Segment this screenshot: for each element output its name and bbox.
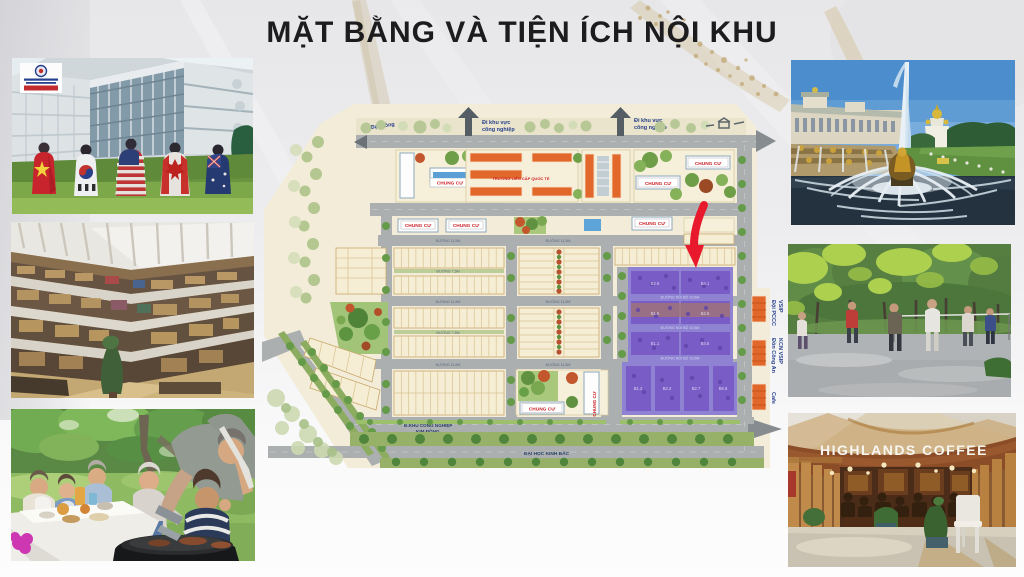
svg-text:Đội PCCC: Đội PCCC <box>770 300 776 326</box>
svg-text:ĐƯỜNG NỘI BỘ 10,5M: ĐƯỜNG NỘI BỘ 10,5M <box>661 325 700 330</box>
svg-text:CHUNG CƯ: CHUNG CƯ <box>437 181 463 187</box>
svg-text:ĐƯỜNG 11,5M: ĐƯỜNG 11,5M <box>436 299 461 304</box>
svg-text:CHUNG CƯ: CHUNG CƯ <box>529 407 555 413</box>
svg-text:B2.9: B2.9 <box>651 281 660 286</box>
svg-text:ĐƯỜNG NỘI BỘ 10,5M: ĐƯỜNG NỘI BỘ 10,5M <box>661 295 700 300</box>
svg-text:CHUNG CƯ: CHUNG CƯ <box>453 223 479 229</box>
svg-text:B1.2: B1.2 <box>634 386 643 391</box>
svg-text:ĐƯỜNG 11,5M: ĐƯỜNG 11,5M <box>546 299 571 304</box>
svg-text:B2.6: B2.6 <box>701 311 710 316</box>
svg-text:Đi khu vực: Đi khu vực <box>482 120 510 126</box>
svg-text:B6.8: B6.8 <box>719 386 728 391</box>
svg-text:HIGHLANDS COFFEE: HIGHLANDS COFFEE <box>820 442 988 458</box>
svg-text:CHUNG CƯ: CHUNG CƯ <box>592 391 597 416</box>
svg-text:ĐƯỜNG 11,5M: ĐƯỜNG 11,5M <box>546 362 571 367</box>
svg-text:Đồn Công An: Đồn Công An <box>770 338 776 374</box>
svg-text:ĐƯỜNG 7,5M: ĐƯỜNG 7,5M <box>436 330 459 335</box>
svg-text:B4.5: B4.5 <box>701 341 710 346</box>
svg-text:công nghiệp: công nghiệp <box>482 127 515 133</box>
svg-text:TRƯỜNG LIÊN CẤP QUỐC TẾ: TRƯỜNG LIÊN CẤP QUỐC TẾ <box>492 176 549 181</box>
svg-text:CHUNG CƯ: CHUNG CƯ <box>639 221 665 227</box>
svg-text:ĐƯỜNG 11,5M: ĐƯỜNG 11,5M <box>436 238 461 243</box>
svg-text:CHUNG CƯ: CHUNG CƯ <box>695 161 721 167</box>
svg-text:ĐƯỜNG 7,5M: ĐƯỜNG 7,5M <box>436 269 459 274</box>
svg-text:B4.1: B4.1 <box>701 281 710 286</box>
svg-text:Cafe: Cafe <box>770 392 776 404</box>
svg-text:B2.7: B2.7 <box>692 386 701 391</box>
svg-text:KCN VSIP: KCN VSIP <box>777 338 783 364</box>
svg-text:ĐƯỜNG 11,5M: ĐƯỜNG 11,5M <box>546 238 571 243</box>
svg-text:B1.1: B1.1 <box>651 341 660 346</box>
svg-text:B2.2: B2.2 <box>663 386 672 391</box>
svg-text:CHUNG CƯ: CHUNG CƯ <box>645 181 671 187</box>
svg-text:ĐƯỜNG NỘI BỘ 10,5M: ĐƯỜNG NỘI BỘ 10,5M <box>661 356 700 361</box>
svg-text:ĐƯỜNG 11,5M: ĐƯỜNG 11,5M <box>436 362 461 367</box>
svg-text:VSIP: VSIP <box>777 300 783 313</box>
svg-text:CHUNG CƯ: CHUNG CƯ <box>405 223 431 229</box>
svg-text:B1.5: B1.5 <box>651 311 660 316</box>
